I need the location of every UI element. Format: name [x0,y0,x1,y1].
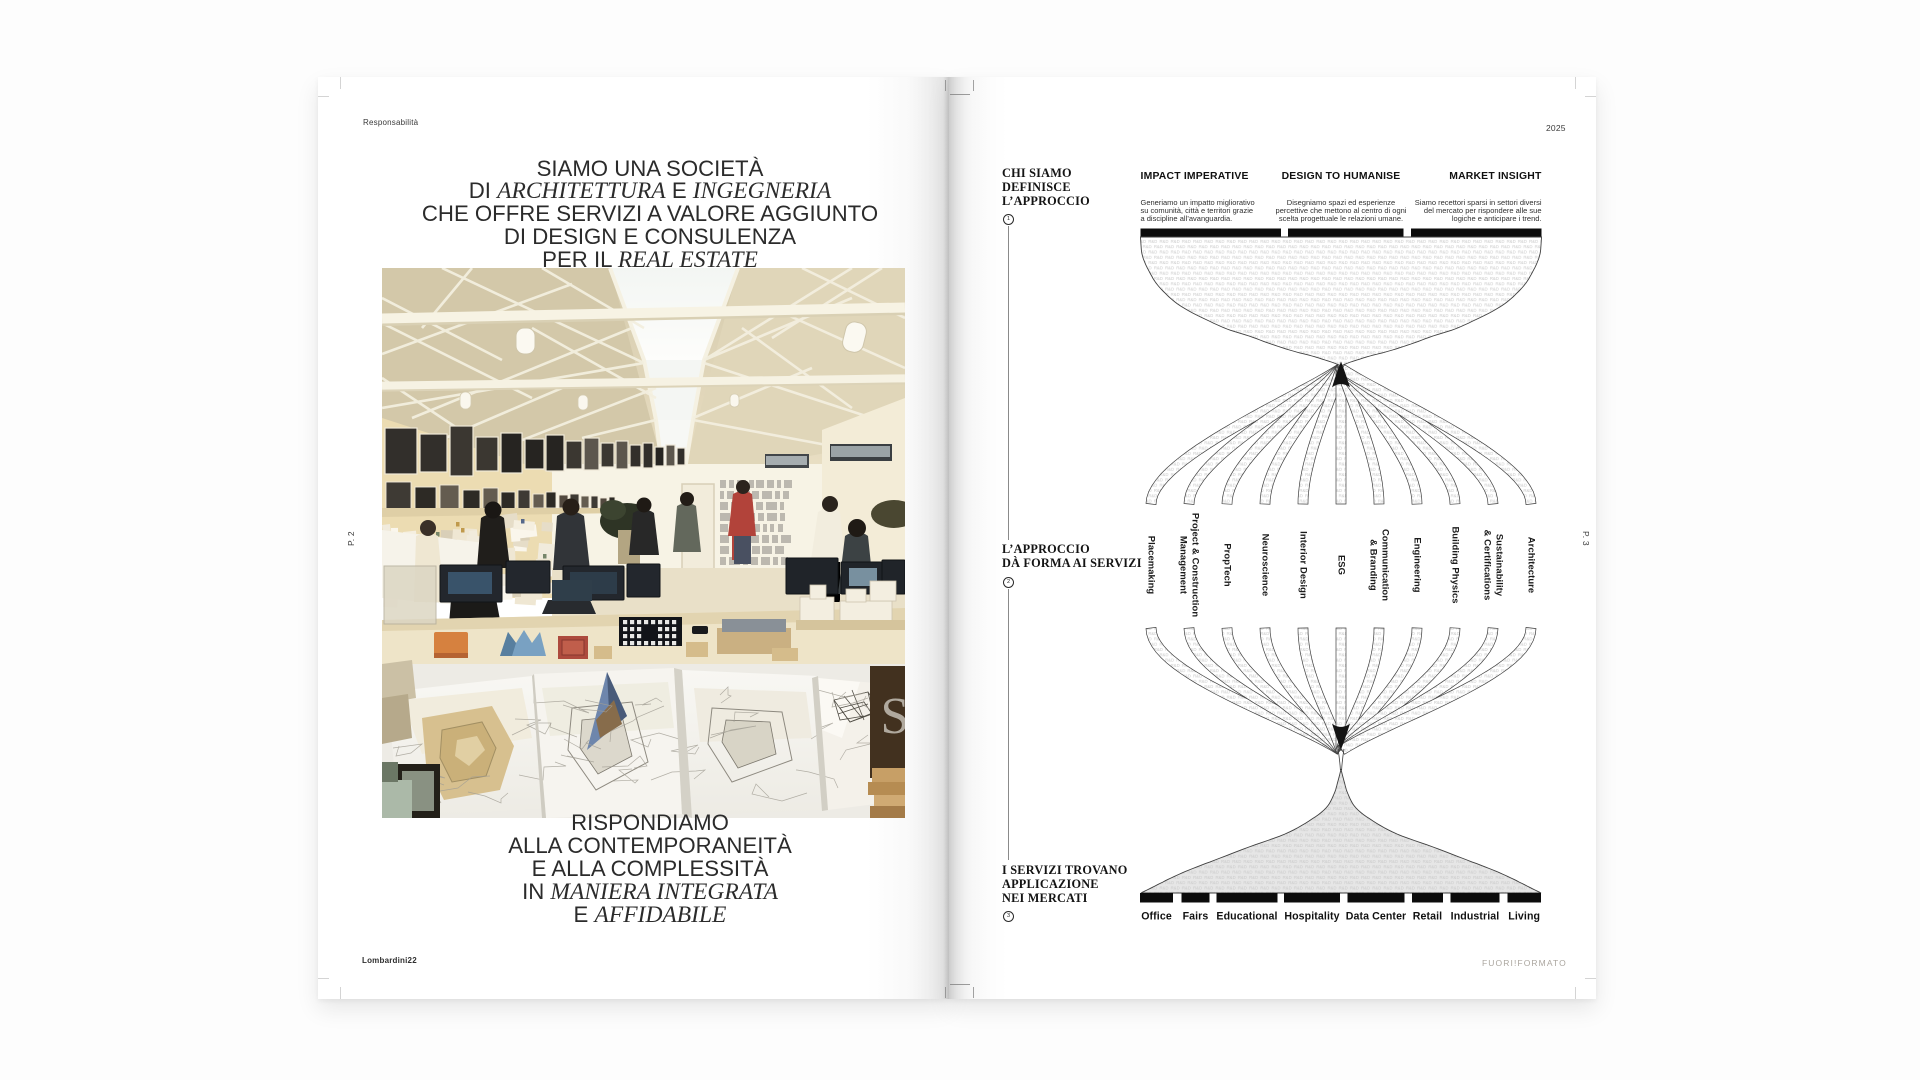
svg-text:Engineering: Engineering [1413,537,1424,592]
svg-text:Industrial: Industrial [1451,911,1500,923]
svg-text:PropTech: PropTech [1223,543,1234,587]
svg-text:Sustainability: Sustainability [1494,534,1505,597]
svg-text:ESG: ESG [1337,555,1348,575]
svg-text:Retail: Retail [1413,911,1442,923]
svg-text:Fairs: Fairs [1183,911,1209,923]
svg-text:Building Physics: Building Physics [1451,526,1462,603]
svg-text:Hospitality: Hospitality [1284,911,1339,923]
svg-text:Project & Construction: Project & Construction [1190,513,1201,617]
svg-text:Data Center: Data Center [1346,911,1407,923]
svg-text:Office: Office [1141,911,1172,923]
svg-text:Communication: Communication [1380,529,1391,601]
svg-text:Living: Living [1508,911,1540,923]
svg-text:Placemaking: Placemaking [1147,536,1158,595]
svg-text:Management: Management [1179,536,1190,594]
svg-text:& Branding: & Branding [1369,539,1380,591]
svg-text:Architecture: Architecture [1527,537,1538,593]
svg-text:Neuroscience: Neuroscience [1261,534,1272,597]
svg-text:Educational: Educational [1216,911,1277,923]
svg-text:& Certifications: & Certifications [1483,530,1494,601]
svg-text:Interior Design: Interior Design [1299,531,1310,599]
